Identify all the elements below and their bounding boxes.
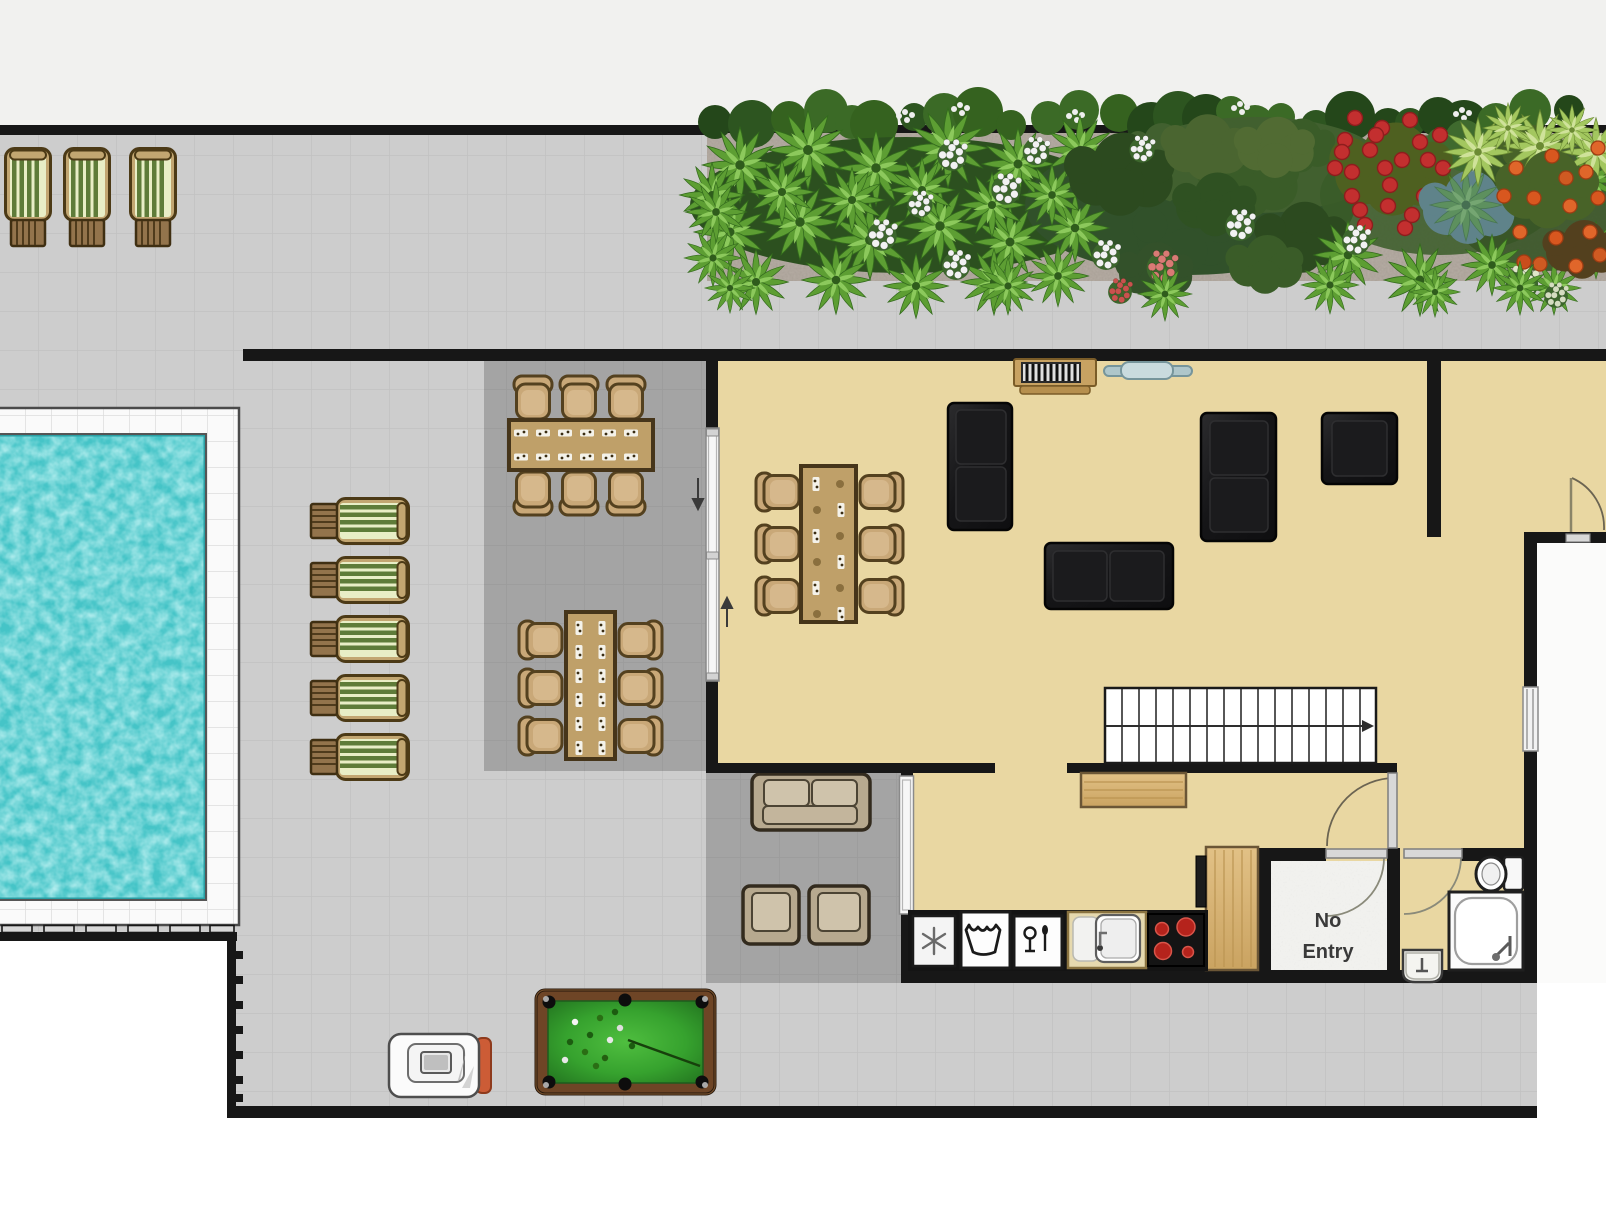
svg-text:Entry: Entry: [1302, 941, 1354, 963]
svg-text:No: No: [1315, 910, 1342, 932]
